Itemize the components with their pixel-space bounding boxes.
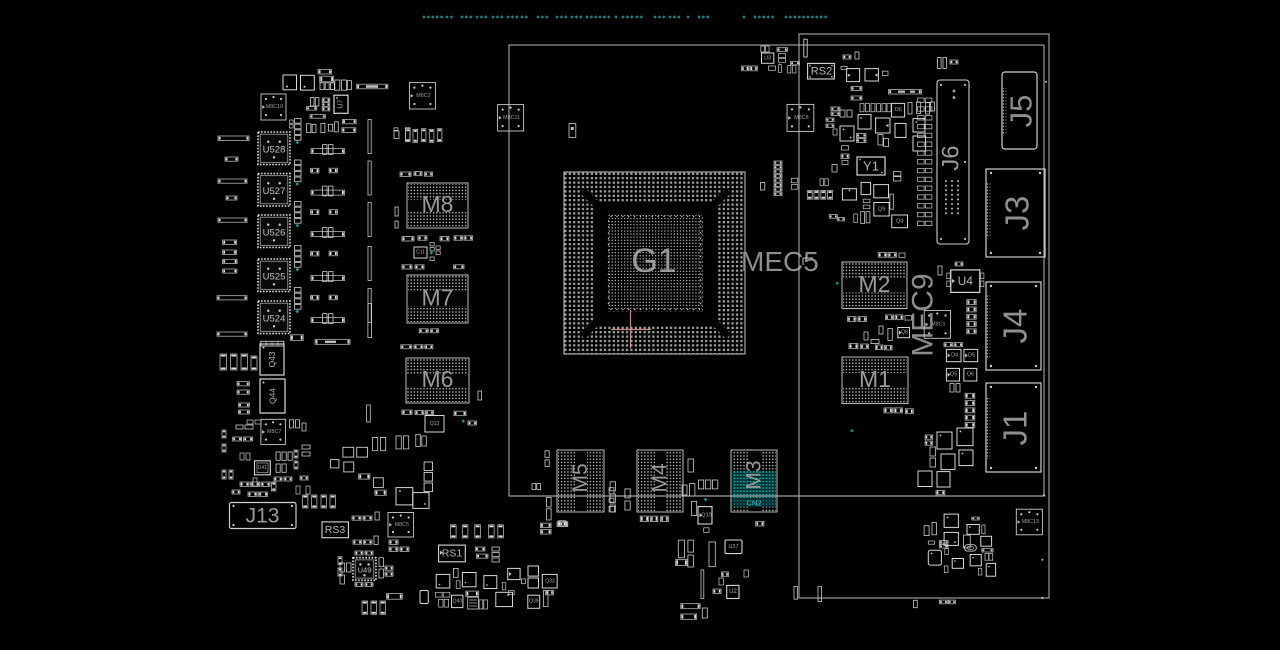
- svg-text:M8C8: M8C8: [794, 115, 808, 121]
- svg-text:M6: M6: [422, 366, 454, 392]
- svg-text:M8C7: M8C7: [267, 429, 281, 435]
- svg-text:M7: M7: [422, 285, 454, 311]
- svg-text:Q44: Q44: [268, 388, 278, 404]
- svg-text:RS2: RS2: [811, 65, 832, 77]
- svg-text:MEC5: MEC5: [741, 246, 819, 277]
- svg-text:Q13: Q13: [430, 421, 440, 427]
- svg-text:M8C10: M8C10: [266, 104, 283, 110]
- svg-text:M1: M1: [859, 366, 891, 392]
- svg-text:U3: U3: [764, 55, 771, 61]
- svg-text:MEC9: MEC9: [907, 273, 940, 356]
- svg-text:M8C11: M8C11: [503, 115, 520, 121]
- svg-text:M8: M8: [422, 191, 454, 217]
- svg-text:Q6: Q6: [967, 372, 974, 378]
- svg-text:J1: J1: [997, 411, 1034, 446]
- svg-text:U527: U527: [263, 186, 286, 197]
- svg-text:M3: M3: [743, 460, 766, 489]
- svg-text:J3: J3: [999, 196, 1036, 231]
- svg-text:U2: U2: [729, 589, 737, 595]
- svg-text:U7: U7: [338, 100, 345, 109]
- svg-text:Y1: Y1: [863, 159, 879, 174]
- svg-text:D6: D6: [895, 107, 902, 113]
- svg-text:J4: J4: [997, 309, 1034, 344]
- svg-text:J5: J5: [1004, 95, 1039, 128]
- svg-text:U528: U528: [263, 144, 286, 155]
- svg-text:Q43: Q43: [267, 351, 277, 367]
- svg-text:U525: U525: [263, 271, 286, 282]
- svg-text:U37: U37: [728, 544, 738, 550]
- svg-text:Q10: Q10: [701, 512, 711, 518]
- svg-text:C11: C11: [416, 250, 425, 256]
- svg-text:Q9: Q9: [878, 206, 885, 212]
- svg-text:M8C1: M8C1: [931, 321, 945, 327]
- svg-text:J6: J6: [938, 145, 965, 170]
- svg-text:U526: U526: [263, 227, 286, 238]
- svg-text:U41: U41: [258, 465, 267, 471]
- svg-text:J13: J13: [246, 505, 280, 528]
- svg-text:RS3: RS3: [325, 524, 346, 536]
- svg-text:G1: G1: [631, 242, 676, 280]
- svg-text:Q8: Q8: [901, 330, 908, 336]
- svg-text:M8C2: M8C2: [416, 93, 430, 99]
- svg-text:RS1: RS1: [442, 548, 463, 560]
- svg-text:Q4: Q4: [896, 218, 903, 224]
- svg-text:U49: U49: [358, 566, 372, 575]
- svg-text:D4: D4: [951, 353, 958, 359]
- svg-text:Q5: Q5: [950, 372, 957, 378]
- svg-text:U524: U524: [263, 313, 286, 324]
- svg-text:M8C13: M8C13: [1022, 519, 1039, 525]
- svg-text:Q39: Q39: [529, 599, 539, 605]
- svg-text:CN2: CN2: [746, 499, 761, 508]
- svg-text:Q33: Q33: [545, 578, 555, 584]
- svg-text:D5: D5: [968, 353, 975, 359]
- svg-text:U4: U4: [958, 274, 974, 288]
- svg-text:M5: M5: [569, 463, 592, 492]
- svg-text:M4: M4: [649, 463, 672, 492]
- svg-text:Q40: Q40: [453, 598, 463, 604]
- svg-text:M8C5: M8C5: [395, 522, 409, 528]
- svg-text:M2: M2: [859, 271, 891, 297]
